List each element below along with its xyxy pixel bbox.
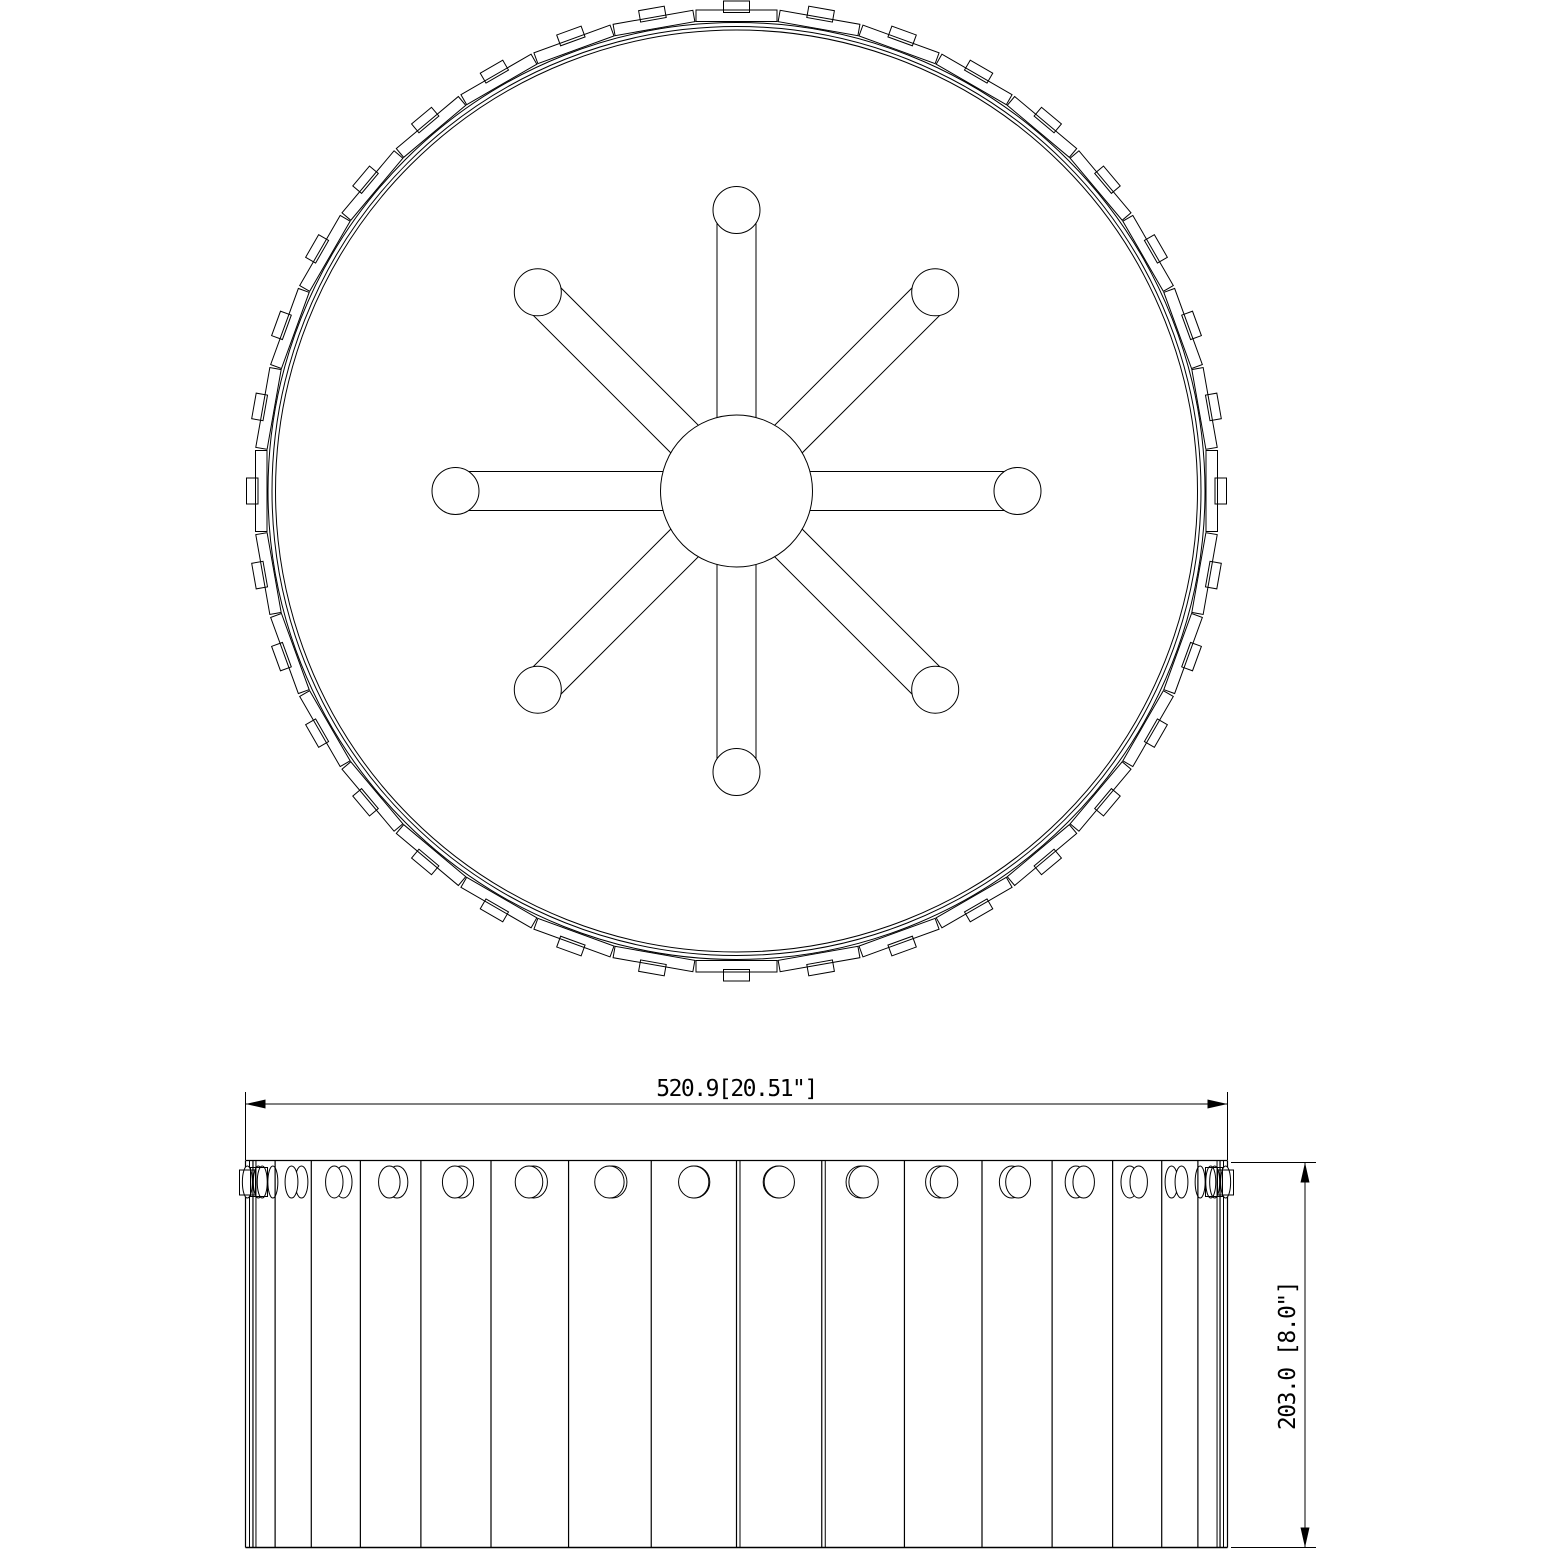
bulb-circle: [713, 749, 760, 796]
panel-tab: [807, 960, 835, 976]
panel-tab: [353, 166, 379, 193]
dimension-arrow: [1208, 1100, 1228, 1109]
panel-tab: [1205, 393, 1221, 421]
shade-panel: [534, 25, 614, 64]
bulb-circle: [514, 666, 561, 713]
shade-panel: [1070, 762, 1131, 831]
shade-panel: [534, 918, 614, 957]
slat-hole: [595, 1166, 624, 1198]
shade-panel: [696, 961, 777, 973]
shade-panel: [396, 96, 465, 157]
slat-hole: [1006, 1166, 1031, 1198]
bulb-circle: [912, 666, 959, 713]
shade-panel: [1123, 691, 1173, 767]
light-fixture-technical-drawing: 520.9[20.51"] 203.0 [8.0"]: [0, 0, 1552, 1552]
spoke-arm: [717, 210, 756, 431]
panel-tab: [964, 899, 992, 922]
slat-hole-inner: [1195, 1166, 1205, 1198]
panel-tab: [480, 60, 508, 83]
panel-tab: [1205, 561, 1221, 589]
height-dimension-label: 203.0 [8.0"]: [1275, 1282, 1301, 1430]
dimension-arrow: [1301, 1528, 1310, 1548]
shade-panel: [1164, 614, 1203, 694]
shade-panel: [342, 151, 403, 220]
slat-hole: [1175, 1166, 1188, 1198]
panel-tab: [1095, 789, 1121, 816]
panel-tab: [306, 719, 329, 747]
shade-panel: [1192, 533, 1217, 615]
shade-panel: [271, 614, 310, 694]
bulb-circle: [713, 187, 760, 234]
technical-drawing-sheet: 520.9[20.51"] 203.0 [8.0"]: [0, 0, 1552, 1552]
top-view: [247, 1, 1227, 981]
shade-panel: [300, 215, 350, 291]
slat-hole: [849, 1166, 878, 1198]
panel-tab: [252, 561, 268, 589]
shade-panel: [256, 533, 281, 615]
slat-hole: [379, 1166, 400, 1198]
slat-hole: [515, 1166, 543, 1198]
shade-panel: [859, 25, 939, 64]
front-view: [240, 1161, 1234, 1548]
dimension-arrow: [1301, 1163, 1310, 1183]
shade-panel: [461, 877, 537, 927]
shade-panel: [256, 368, 281, 450]
bulb-circle: [994, 468, 1041, 515]
panel-tab: [1215, 478, 1227, 504]
shade-panel: [1007, 96, 1076, 157]
shade-panel: [1007, 825, 1076, 886]
panel-tab: [412, 107, 439, 133]
shade-panel: [1206, 451, 1218, 532]
panel-tab: [807, 6, 835, 22]
shade-panel: [936, 877, 1012, 927]
shade-panel: [613, 10, 695, 35]
slat-hole-inner: [268, 1166, 278, 1198]
bulb-circle: [514, 269, 561, 316]
bulb-circle: [432, 468, 479, 515]
bulb-circle: [912, 269, 959, 316]
panel-tab: [412, 849, 439, 875]
shade-panel: [778, 10, 860, 35]
shade-panel: [1164, 288, 1203, 368]
width-dimension-label: 520.9[20.51"]: [656, 1076, 817, 1102]
panel-tab: [724, 970, 750, 982]
shade-panel: [696, 10, 777, 22]
spoke-arm: [456, 472, 677, 511]
shade-panel: [859, 918, 939, 957]
panel-tab: [724, 1, 750, 13]
panel-tab: [1144, 719, 1167, 747]
shade-panel: [342, 762, 403, 831]
panel-tab: [1034, 107, 1061, 133]
spoke-arm: [717, 551, 756, 772]
slat-hole: [1073, 1166, 1094, 1198]
panel-tab: [252, 393, 268, 421]
panel-tab: [1095, 166, 1121, 193]
slat-hole: [442, 1166, 467, 1198]
slat-hole: [1130, 1166, 1147, 1198]
shade-panel: [461, 54, 537, 104]
shade-panel: [300, 691, 350, 767]
spoke-arm: [797, 472, 1018, 511]
slat-hole: [764, 1166, 794, 1198]
slat-hole: [257, 1166, 267, 1198]
shade-panel: [256, 451, 268, 532]
shade-panel: [396, 825, 465, 886]
shade-panel: [778, 946, 860, 971]
slat-hole: [679, 1166, 709, 1198]
shade-panel: [1123, 215, 1173, 291]
slat-hole: [326, 1166, 343, 1198]
slat-hole: [285, 1166, 298, 1198]
shade-panel: [271, 288, 310, 368]
panel-tab: [639, 6, 667, 22]
panel-tab: [1034, 849, 1061, 875]
panel-tab: [964, 60, 992, 83]
panel-tab: [353, 789, 379, 816]
dimension-arrow: [246, 1100, 266, 1109]
panel-tab: [1144, 235, 1167, 263]
shade-panel: [1070, 151, 1131, 220]
panel-tab: [306, 235, 329, 263]
slat-hole: [930, 1166, 958, 1198]
shade-panel: [613, 946, 695, 971]
panel-tab: [480, 899, 508, 922]
hub-circle: [661, 415, 813, 567]
panel-tab: [247, 478, 259, 504]
shade-panel: [936, 54, 1012, 104]
panel-tab: [639, 960, 667, 976]
shade-panel: [1192, 368, 1217, 450]
